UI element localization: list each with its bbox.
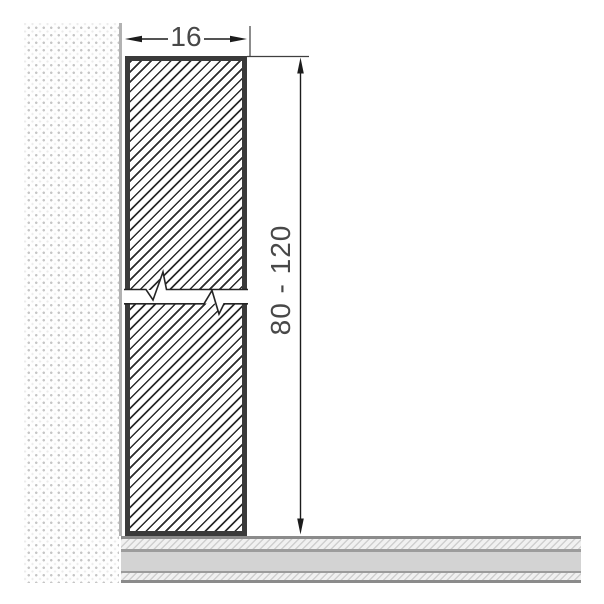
floor-upper-screed: [121, 539, 581, 549]
skirting-profile: [125, 56, 247, 536]
height-dimension-label: 80 - 120: [267, 225, 295, 336]
wall-section: [24, 23, 119, 583]
height-dim-arrow-top: [297, 58, 304, 74]
floor-lower-screed: [121, 573, 581, 580]
height-dim-arrow-bottom: [297, 519, 304, 535]
floor-core-layer: [121, 552, 581, 571]
floor-bottom-border: [121, 580, 581, 583]
floor-section: [121, 536, 581, 583]
width-dim-arrow-left: [125, 36, 142, 43]
section-drawing: 16 80 - 120: [0, 0, 604, 604]
width-dim-arrow-right: [230, 36, 247, 43]
width-dimension-label: 16: [170, 23, 201, 51]
wall-edge-line: [119, 23, 122, 536]
